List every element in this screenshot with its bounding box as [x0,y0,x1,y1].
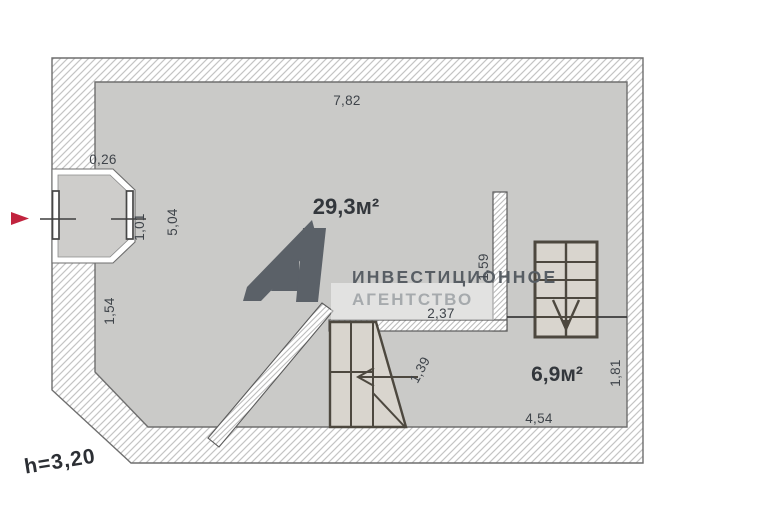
dim-top-width: 7,82 [333,93,360,108]
watermark-line1: ИНВЕСТИЦИОННОЕ [352,267,557,287]
room-area-label-large: 29,3м² [313,194,379,219]
dim-bay-wall: 0,26 [89,152,116,167]
dim-small-room-depth: 1,81 [608,359,623,386]
floor-plan-canvas: ИНВЕСТИЦИОННОЕ АГЕНТСТВО 29,3м² 6,9м² 7,… [0,0,770,510]
ceiling-height-label: h=3,20 [23,445,98,479]
staircase-upper [535,242,597,337]
inner-wall-vertical [493,192,507,331]
dim-small-room-width: 4,54 [525,411,553,426]
dim-left-depth: 5,04 [165,208,180,236]
dim-opening-width: 2,37 [427,306,454,321]
dim-bay-window: 1,01 [132,213,147,240]
dim-left-lower-wall: 1,54 [102,297,117,325]
floor-plan: ИНВЕСТИЦИОННОЕ АГЕНТСТВО 29,3м² 6,9м² 7,… [0,0,770,510]
bay-window-floor [58,175,129,257]
entrance-arrow-icon [11,212,29,225]
dim-inner-wall: 1,59 [476,253,491,280]
window-left [53,191,60,239]
watermark-line2: АГЕНТСТВО [352,290,473,309]
room-area-label-small: 6,9м² [531,363,583,386]
